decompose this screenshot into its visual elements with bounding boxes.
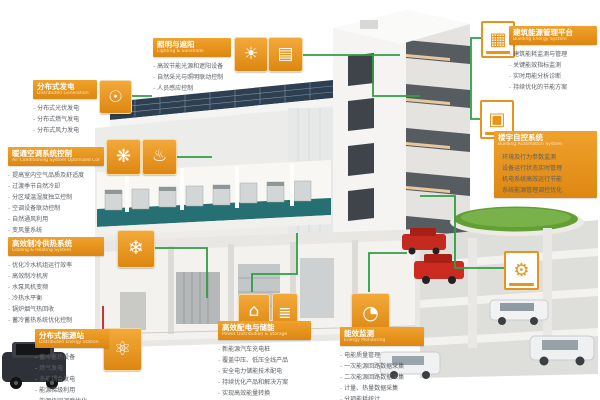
panel-header: 分布式能源站 Distributed Energy Station bbox=[35, 329, 109, 348]
blinds-icon: ▤ bbox=[268, 37, 303, 72]
panel-bullets: 分布式光伏发电 分布式燃气发电 分布式风力发电 bbox=[33, 103, 143, 136]
panel-energy-monitoring: 能效监测 Energy Monitoring 电能质量管理 一次能源回路数据采集… bbox=[340, 327, 460, 400]
panel-header: 照明与遮阳 Lighting & Sunshade bbox=[153, 38, 231, 57]
panel-header: 楼宇自控系统 Building Automation System 环境及行为参… bbox=[494, 131, 597, 198]
panel-bullets: 高效节能光源和遮阳设备 自然采光与照明联动控制 人员感应控制 bbox=[153, 61, 273, 94]
panel-bullets: 电能质量管理 一次能源回路数据采集 二次能源回路数据采集 计量、热量数据采集 分… bbox=[340, 350, 460, 400]
panel-bullets: 蓄冷蓄热设备 燃气发电 多能耦合发电 能源梯级利用 能源协同调度优化 bbox=[35, 352, 145, 400]
panel-header: 高效配电与储能 Power Distribution & Storage bbox=[218, 321, 311, 340]
panel-header: 暖通空调系统控制 Air Conditioning System Optimiz… bbox=[8, 147, 104, 166]
panel-bullets: 建筑能耗监测与管理 关键能效指标监测 实时用能分析诊断 持续优化的节能方案 bbox=[509, 49, 599, 93]
panel-header: 分布式发电 Distributed Generation bbox=[33, 80, 97, 99]
panel-cooling-heating: 高效制冷供热系统 Cooling & Heating System 优化冷水机组… bbox=[8, 237, 118, 326]
panel-bullets: 环境及行为参数监测 设备运行状态实时管理 机电系统高效运行节能 系统能源管理调控… bbox=[498, 152, 593, 196]
snowflake-icon: ❄ bbox=[117, 230, 155, 268]
panel-energy-management-platform: 建筑能源管理平台 Building Energy System 建筑能耗监测与管… bbox=[509, 26, 599, 93]
panel-lighting-sunshade: 照明与遮阳 Lighting & Sunshade 高效节能光源和遮阳设备 自然… bbox=[153, 38, 273, 94]
panel-power-storage: 高效配电与储能 Power Distribution & Storage 新能源… bbox=[218, 321, 343, 399]
panel-bullets: 优化冷水机组运行效率 高效制冷机房 水泵风机变频 冷热水平衡 锅炉烟气热回收 蓄… bbox=[8, 260, 118, 326]
panel-header: 高效制冷供热系统 Cooling & Heating System bbox=[8, 237, 104, 256]
panel-hvac-control: 暖通空调系统控制 Air Conditioning System Optimiz… bbox=[8, 147, 118, 236]
thermometer-icon: ♨ bbox=[142, 139, 177, 175]
panel-bullets: 提高室内空气品质及舒适度 过渡季节自然冷却 分区域温湿度独立控制 空调设备联动控… bbox=[8, 170, 118, 236]
gear-icon: ⚙ bbox=[504, 251, 539, 290]
panel-header: 能效监测 Energy Monitoring bbox=[340, 327, 424, 346]
panel-energy-station: 分布式能源站 Distributed Energy Station 蓄冷蓄热设备… bbox=[35, 329, 145, 400]
panel-building-automation: 楼宇自控系统 Building Automation System 环境及行为参… bbox=[494, 131, 598, 198]
smart-building-infographic: ☉ ❋ ♨ ❄ ⚛ ☀ ▤ ⌂ ≣ ◔ ▦ ▣ ⚙ 分布式发电 Distribu… bbox=[0, 0, 600, 400]
panel-header: 建筑能源管理平台 Building Energy System bbox=[509, 26, 597, 45]
panel-distributed-generation: 分布式发电 Distributed Generation 分布式光伏发电 分布式… bbox=[33, 80, 143, 136]
panel-bullets: 新能源汽车充电桩 覆盖中压、低压全线产品 安全电力储能技术配电 持续优化产品和解… bbox=[218, 344, 343, 399]
